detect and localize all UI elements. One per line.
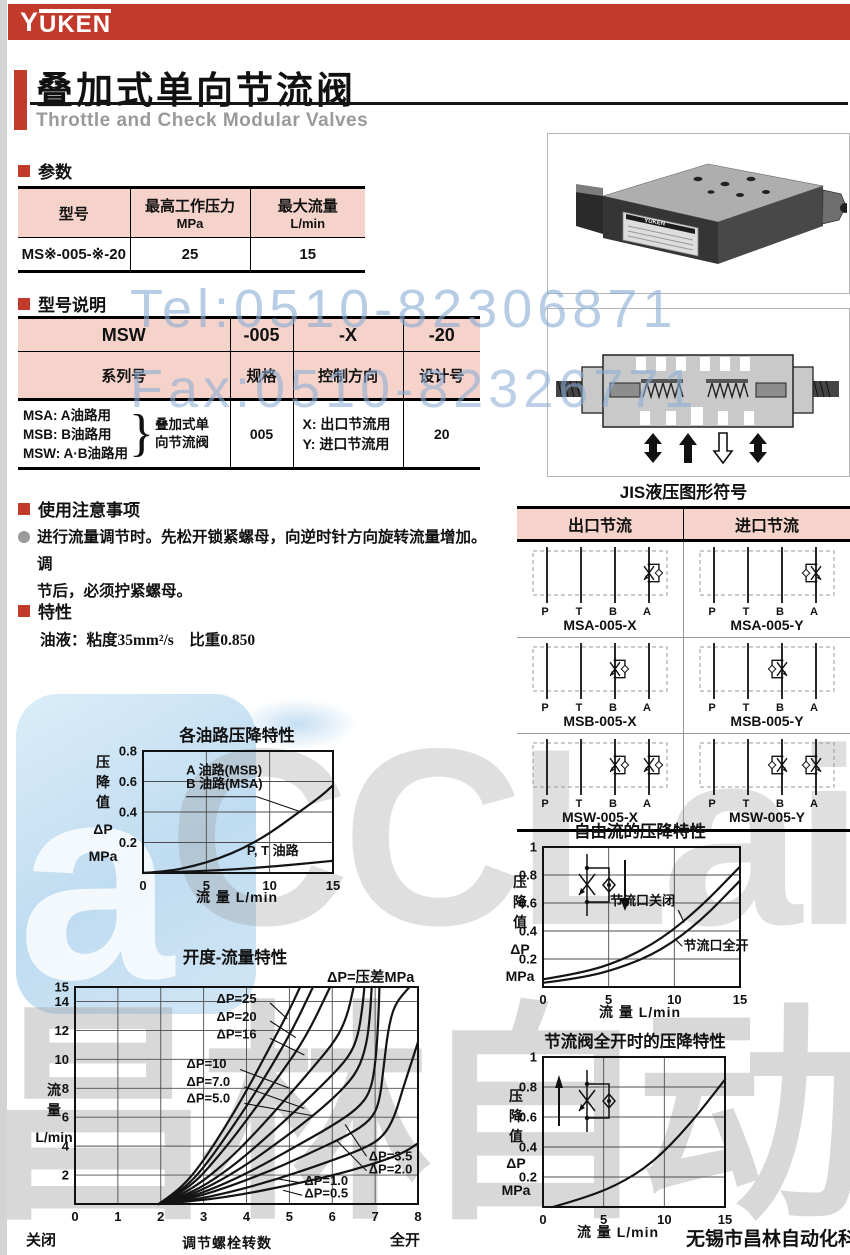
chart4-plot: 0510150.20.40.60.81: [508, 1043, 743, 1225]
jis-grid: PTBAMSA-005-XPTBAMSA-005-YPTBAMSB-005-XP…: [517, 542, 850, 832]
chart-svg-3: 0510150.20.40.60.81节流口关闭节流口全开: [508, 833, 758, 1007]
section-heading-model: 型号说明: [18, 291, 106, 316]
jis-symbol-drawing: PTBA: [525, 545, 675, 619]
svg-text:A: A: [643, 702, 651, 714]
jis-col-inlet: 进口节流: [684, 509, 850, 539]
params-col-pressure: 最高工作压力 MPa: [130, 188, 250, 238]
series-P,T油路: [143, 861, 333, 873]
svg-text:A: A: [643, 606, 651, 618]
jis-cell-MSA-005-Y: PTBAMSA-005-Y: [684, 542, 850, 637]
check-throttle-symbol: [644, 563, 663, 583]
params-model-value: MS※-005-※-20: [18, 238, 130, 272]
curve-label: ΔP=20: [216, 1009, 256, 1024]
curve-label: ΔP=0.5: [304, 1185, 348, 1200]
svg-text:5: 5: [286, 1209, 293, 1224]
flow-arrow-double: [644, 433, 662, 463]
jis-title: JIS液压图形符号: [517, 478, 850, 503]
chart3-title: 自由流的压降特性: [530, 818, 750, 842]
jis-row: PTBAMSW-005-XPTBAMSW-005-Y: [517, 733, 850, 829]
model-spec-cell: 005: [230, 400, 293, 469]
svg-text:7: 7: [372, 1209, 379, 1224]
chart2-title: 开度-流量特性: [125, 944, 345, 968]
notes-heading-label: 使用注意事项: [38, 496, 140, 521]
jis-cell-MSB-005-X: PTBAMSB-005-X: [517, 638, 684, 733]
model-code-row: MSW -005 -X -20: [18, 318, 480, 352]
chart1-xlabel: 流 量 L/min: [157, 887, 317, 907]
usage-notes: 进行流量调节时。先松开锁紧螺母，向逆时针方向旋转流量增加。调 节后，必须拧紧螺母…: [18, 524, 490, 605]
model-design-cell: 20: [403, 400, 480, 469]
svg-text:P: P: [541, 798, 548, 810]
flow-arrow-down-outline: [714, 433, 732, 463]
cross-section-diagram: [547, 308, 850, 477]
svg-text:0: 0: [71, 1209, 78, 1224]
params-col-model: 型号: [18, 188, 130, 238]
check-throttle-symbol: [768, 755, 787, 775]
product-photo-drawing: YUKEN: [548, 134, 847, 291]
check-throttle-symbol: [610, 755, 629, 775]
check-throttle-symbol: [610, 659, 629, 679]
svg-text:P: P: [708, 702, 715, 714]
red-square-icon: [18, 298, 30, 310]
fluid-spec-text: 油液：粘度35mm²/s 比重0.850: [40, 628, 255, 650]
chart1-ylabel: 压降值ΔPMPa: [75, 752, 131, 866]
params-data-row: MS※-005-※-20 25 15: [18, 238, 365, 272]
svg-text:6: 6: [329, 1209, 336, 1224]
model-heading-label: 型号说明: [38, 291, 106, 316]
curve-label: ΔP=25: [216, 991, 256, 1006]
jis-cell-label: MSA-005-Y: [730, 617, 803, 633]
yuken-logo: YUKEN: [20, 9, 111, 35]
svg-text:4: 4: [243, 1209, 251, 1224]
curve-label: 节流口关闭: [610, 893, 675, 908]
cross-section-drawing: [548, 309, 847, 474]
note-line-2: 节后，必须拧紧螺母。: [18, 578, 490, 605]
flow-arrow-up: [679, 433, 697, 463]
jis-cell-label: MSB-005-X: [563, 713, 636, 729]
jis-symbol-drawing: PTBA: [525, 737, 675, 811]
title-accent-bar: [14, 70, 27, 130]
model-series-cell: MSA: A油路用 MSB: B油路用 MSW: A·B油路用 } 叠加式单 向…: [18, 400, 230, 469]
svg-text:8: 8: [414, 1209, 421, 1224]
series-A油路(MSB)/B油路(MSA): [143, 785, 333, 873]
params-pressure-value: 25: [130, 238, 250, 272]
product-photo: YUKEN: [547, 133, 850, 294]
jis-row: PTBAMSB-005-XPTBAMSB-005-Y: [517, 637, 850, 733]
jis-cell-label: MSB-005-Y: [730, 713, 803, 729]
curve-label: B 油路(MSA): [186, 776, 263, 791]
yuken-logo-y: Y: [20, 9, 39, 35]
jis-symbol-drawing: PTBA: [692, 545, 842, 619]
svg-text:15: 15: [326, 878, 340, 893]
section-heading-notes: 使用注意事项: [18, 496, 140, 521]
model-code-table: MSW -005 -X -20 系列号 规格 控制方向 设计号 MSA: A油路…: [18, 316, 480, 470]
jis-symbol-drawing: PTBA: [525, 641, 675, 715]
series-节流口关闭: [543, 867, 740, 980]
model-direction-cell: X: 出口节流用 Y: 进口节流用: [293, 400, 403, 469]
svg-text:12: 12: [55, 1023, 69, 1038]
svg-text:0: 0: [139, 878, 146, 893]
chart4-title: 节流阀全开时的压降特性: [525, 1028, 745, 1052]
jis-col-outlet: 出口节流: [517, 509, 684, 539]
jis-cell-MSA-005-X: PTBAMSA-005-X: [517, 542, 684, 637]
params-col-flow: 最大流量 L/min: [250, 188, 365, 238]
svg-text:10: 10: [55, 1052, 69, 1067]
svg-text:P: P: [541, 606, 548, 618]
jis-symbol-drawing: PTBA: [692, 641, 842, 715]
jis-header-row: 出口节流 进口节流: [517, 506, 850, 542]
valve-symbol-inset: [555, 1070, 615, 1132]
chart4-xlabel: 流 量 L/min: [543, 1222, 693, 1242]
red-square-icon: [18, 605, 30, 617]
svg-text:A: A: [810, 798, 818, 810]
params-table: 型号 最高工作压力 MPa 最大流量 L/min MS※-005-※-20 25…: [18, 186, 365, 273]
chart-svg-2: 012345678246810121415ΔP=25ΔP=20ΔP=16ΔP=1…: [38, 973, 438, 1231]
yuken-logo-rest: UKEN: [39, 9, 111, 35]
flow-arrow-double: [749, 433, 767, 463]
svg-text:15: 15: [55, 980, 69, 995]
chart3-ylabel: 压降值ΔPMPa: [499, 872, 541, 986]
datasheet-page: a CCLair 昌林自动化 YUKEN 叠加式单向节流阀 Throttle a…: [0, 0, 850, 1255]
curve-label: ΔP=10: [186, 1056, 226, 1071]
chart3-xlabel: 流 量 L/min: [560, 1002, 720, 1022]
chart2-open-label: 全开: [390, 1229, 420, 1250]
svg-text:A: A: [810, 702, 818, 714]
chart2-ylabel: 流量L/min: [24, 1080, 84, 1147]
params-header-row: 型号 最高工作压力 MPa 最大流量 L/min: [18, 188, 365, 238]
curve-label: ΔP=16: [216, 1026, 256, 1041]
svg-text:15: 15: [733, 992, 747, 1007]
features-heading-label: 特性: [38, 598, 72, 623]
model-detail-row: MSA: A油路用 MSB: B油路用 MSW: A·B油路用 } 叠加式单 向…: [18, 400, 480, 469]
jis-cell-label: MSA-005-X: [563, 617, 636, 633]
svg-text:P: P: [708, 798, 715, 810]
check-throttle-symbol: [802, 563, 821, 583]
svg-text:A: A: [643, 798, 651, 810]
model-field-row: 系列号 规格 控制方向 设计号: [18, 352, 480, 400]
svg-text:P: P: [708, 606, 715, 618]
page-title: 叠加式单向节流阀: [36, 60, 356, 114]
bullet-icon: [18, 531, 30, 543]
brace-glyph: }: [129, 406, 154, 462]
jis-row: PTBAMSA-005-XPTBAMSA-005-Y: [517, 542, 850, 637]
brand-header-bar: YUKEN: [8, 4, 850, 40]
chart2-annotation: ΔP=压差MPa: [327, 966, 414, 987]
jis-cell-MSW-005-Y: PTBAMSW-005-Y: [684, 734, 850, 829]
curve-label: P, T 油路: [247, 843, 300, 858]
chart2-plot: 012345678246810121415ΔP=25ΔP=20ΔP=16ΔP=1…: [38, 973, 438, 1231]
curve-label: ΔP=2.0: [369, 1162, 413, 1177]
curve-label: 节流口全开: [684, 938, 749, 953]
jis-cell-MSB-005-Y: PTBAMSB-005-Y: [684, 638, 850, 733]
curve-label: ΔP=7.0: [186, 1074, 230, 1089]
title-rule: [30, 102, 848, 105]
page-subtitle: Throttle and Check Modular Valves: [36, 110, 368, 132]
svg-text:2: 2: [157, 1209, 164, 1224]
params-heading-label: 参数: [38, 158, 72, 183]
jis-cell-MSW-005-X: PTBAMSW-005-X: [517, 734, 684, 829]
svg-text:A: A: [810, 606, 818, 618]
red-square-icon: [18, 165, 30, 177]
svg-text:0: 0: [539, 992, 546, 1007]
chart3-plot: 0510150.20.40.60.81节流口关闭节流口全开: [508, 833, 758, 1007]
chart2-closed-label: 关闭: [26, 1229, 56, 1250]
params-flow-value: 15: [250, 238, 365, 272]
chart4-ylabel: 压降值ΔPMPa: [495, 1086, 537, 1200]
page-left-edge: [0, 0, 7, 1255]
check-throttle-symbol: [802, 755, 821, 775]
section-heading-features: 特性: [18, 598, 72, 623]
svg-text:2: 2: [62, 1168, 69, 1183]
red-square-icon: [18, 503, 30, 515]
chart-svg-4: 0510150.20.40.60.81: [508, 1043, 743, 1225]
chart2-xlabel: 调节螺栓转数: [147, 1233, 307, 1253]
series-节流阀全开: [553, 1080, 725, 1208]
section-heading-params: 参数: [18, 158, 72, 183]
check-throttle-symbol: [768, 659, 787, 679]
svg-text:3: 3: [200, 1209, 207, 1224]
svg-text:P: P: [541, 702, 548, 714]
chart1-title: 各油路压降特性: [127, 722, 347, 746]
footer-company: 无锡市昌林自动化科技: [686, 1224, 850, 1251]
svg-text:14: 14: [55, 994, 70, 1009]
chart1-plot: 0510150.20.40.60.8A 油路(MSB)B 油路(MSA)P, T…: [108, 738, 358, 900]
jis-symbols-block: JIS液压图形符号 出口节流 进口节流 PTBAMSA-005-XPTBAMSA…: [517, 478, 850, 832]
note-line-1: 进行流量调节时。先松开锁紧螺母，向逆时针方向旋转流量增加。调: [37, 524, 490, 578]
check-throttle-symbol: [644, 755, 663, 775]
svg-text:1: 1: [114, 1209, 121, 1224]
jis-symbol-drawing: PTBA: [692, 737, 842, 811]
curve-label: ΔP=5.0: [186, 1091, 230, 1106]
chart-svg-1: 0510150.20.40.60.8A 油路(MSB)B 油路(MSA)P, T…: [108, 738, 358, 900]
